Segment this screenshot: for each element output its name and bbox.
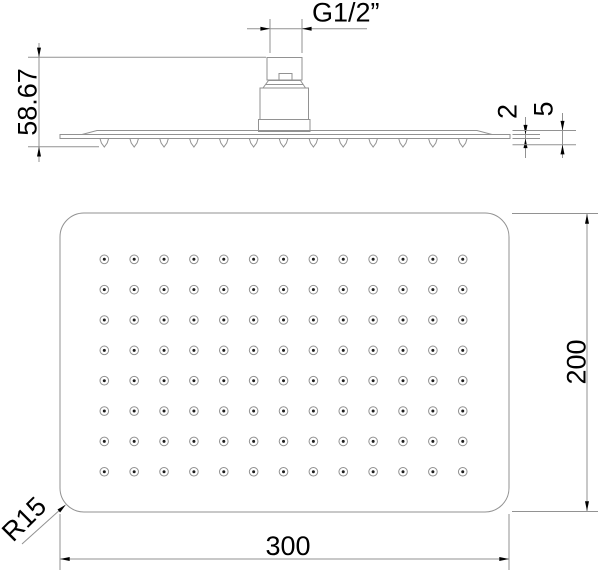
- nozzle-hole-dot: [372, 410, 375, 413]
- nozzle-tip: [100, 139, 109, 148]
- dim-thread: G1/2”: [247, 0, 380, 53]
- nozzle-hole-dot: [342, 410, 345, 413]
- nozzle-hole-dot: [282, 319, 285, 322]
- nozzle-hole-dot: [192, 349, 195, 352]
- nozzle-hole-dot: [252, 319, 255, 322]
- side-view: [60, 58, 510, 148]
- nozzle-hole-dot: [133, 258, 136, 261]
- nozzle-hole-dot: [282, 470, 285, 473]
- nozzle-hole-dot: [402, 319, 405, 322]
- nozzle-hole-dot: [192, 319, 195, 322]
- nozzle-hole-dot: [163, 258, 166, 261]
- nozzle-hole-dot: [163, 440, 166, 443]
- nozzle-hole-dot: [312, 258, 315, 261]
- nozzle-hole-dot: [103, 470, 106, 473]
- nozzle-hole-dot: [342, 470, 345, 473]
- nozzle-hole-dot: [461, 349, 464, 352]
- width-dimension-label: 300: [265, 531, 310, 561]
- nozzle-hole-dot: [372, 440, 375, 443]
- nozzle-hole-dot: [252, 258, 255, 261]
- nozzle-hole-dot: [133, 379, 136, 382]
- drawing-canvas: G1/2” 58.67 2 5 300: [0, 0, 600, 572]
- nozzle-hole-dot: [103, 258, 106, 261]
- nozzle-hole-dot: [252, 288, 255, 291]
- nozzle-hole-dot: [103, 440, 106, 443]
- arrowhead: [499, 557, 509, 561]
- nozzle-tip: [369, 139, 378, 148]
- nozzle-hole-dot: [252, 470, 255, 473]
- arrowhead: [37, 48, 41, 58]
- nozzle-hole-dot: [192, 440, 195, 443]
- nozzle-tip: [429, 139, 438, 148]
- nozzle-hole-dot: [431, 349, 434, 352]
- nozzle-hole-dot: [461, 319, 464, 322]
- nozzle-hole-dot: [402, 288, 405, 291]
- nozzle-hole-dot: [312, 288, 315, 291]
- nozzle-hole-dot: [372, 319, 375, 322]
- nozzle-hole-dot: [402, 470, 405, 473]
- nozzle-hole-dot: [192, 410, 195, 413]
- nozzle-hole-dot: [103, 319, 106, 322]
- arrowhead: [60, 557, 70, 561]
- dim-corner-radius: R15: [0, 491, 66, 547]
- nozzle-tip: [309, 139, 318, 148]
- arrowhead: [302, 27, 312, 31]
- connector-flange: [259, 120, 311, 132]
- nozzle-hole-dot: [461, 379, 464, 382]
- nozzle-hole-dot: [402, 258, 405, 261]
- nozzle-hole-dot: [372, 258, 375, 261]
- nozzle-hole-dot: [402, 349, 405, 352]
- nozzle-hole-dot: [222, 410, 225, 413]
- nozzle-hole-dot: [222, 470, 225, 473]
- nozzle-hole-dot: [372, 349, 375, 352]
- nozzle-hole-dot: [461, 470, 464, 473]
- nozzle-hole-dot: [402, 440, 405, 443]
- nozzle-hole-dot: [163, 410, 166, 413]
- thread-pipe: [267, 58, 302, 81]
- arrowhead: [260, 27, 270, 31]
- nozzle-hole-dot: [222, 379, 225, 382]
- height-dimension-label: 200: [562, 339, 592, 384]
- connector-body: [260, 88, 309, 120]
- nozzle-hole-dot: [252, 440, 255, 443]
- nozzle-hole-dot: [163, 288, 166, 291]
- nozzle-hole-dot: [133, 410, 136, 413]
- arrowhead: [585, 501, 589, 511]
- nozzle-hole-dot: [342, 288, 345, 291]
- nozzle-tip: [190, 139, 199, 148]
- nozzle-hole-dot: [133, 319, 136, 322]
- arrowhead: [585, 214, 589, 224]
- arrowhead: [524, 125, 528, 135]
- nozzle-tip: [279, 139, 288, 148]
- dim-height: 200: [512, 214, 598, 512]
- nozzle-hole-dot: [133, 470, 136, 473]
- connector-nut: [279, 74, 292, 81]
- nozzle-tip: [458, 139, 467, 148]
- nozzle-hole-dot: [222, 288, 225, 291]
- nozzle-hole-dot: [402, 410, 405, 413]
- nozzle-hole-dot: [192, 470, 195, 473]
- nozzle-hole-dot: [342, 440, 345, 443]
- nozzle-hole-dot: [222, 258, 225, 261]
- showerhead-connector: [259, 58, 311, 132]
- nozzle-tip: [399, 139, 408, 148]
- nozzle-hole-dot: [222, 319, 225, 322]
- nozzle-hole-dot: [103, 379, 106, 382]
- side-nozzle-row: [100, 139, 467, 148]
- nozzle-hole-dot: [342, 319, 345, 322]
- nozzle-tip: [219, 139, 228, 148]
- nozzle-hole-dot: [431, 470, 434, 473]
- nozzle-hole-dot: [103, 288, 106, 291]
- nozzle-hole-dot: [163, 349, 166, 352]
- nozzle-hole-dot: [103, 410, 106, 413]
- arrowhead: [524, 139, 528, 149]
- nozzle-hole-dot: [163, 379, 166, 382]
- thread-dimension-label: G1/2”: [312, 0, 380, 28]
- nozzle-hole-dot: [342, 258, 345, 261]
- nozzle-hole-dot: [103, 349, 106, 352]
- nozzle-hole-dot: [461, 258, 464, 261]
- nozzle-hole-dot: [431, 319, 434, 322]
- nozzle-hole-dot: [461, 440, 464, 443]
- nozzle-tip: [130, 139, 139, 148]
- nozzle-grid: [100, 255, 467, 476]
- nozzle-hole-dot: [372, 379, 375, 382]
- nozzle-hole-dot: [222, 440, 225, 443]
- nozzle-hole-dot: [282, 379, 285, 382]
- nozzle-tip: [249, 139, 258, 148]
- nozzle-hole-dot: [461, 288, 464, 291]
- nozzle-hole-dot: [431, 410, 434, 413]
- nozzle-hole-dot: [461, 410, 464, 413]
- nozzle-hole-dot: [133, 440, 136, 443]
- nozzle-hole-dot: [282, 440, 285, 443]
- nozzle-hole-dot: [192, 379, 195, 382]
- nozzle-hole-dot: [312, 410, 315, 413]
- corner-radius-label: R15: [0, 491, 52, 547]
- plate-faceplate: [60, 135, 510, 139]
- nozzle-hole-dot: [312, 440, 315, 443]
- nozzle-hole-dot: [192, 258, 195, 261]
- face-view: [60, 213, 509, 512]
- nozzle-hole-dot: [252, 410, 255, 413]
- height-dimension-label: 58.67: [13, 68, 43, 136]
- nozzle-tip: [339, 139, 348, 148]
- dim-head-height: 58.67: [13, 43, 267, 162]
- arrowhead: [37, 147, 41, 157]
- nozzle-hole-dot: [312, 379, 315, 382]
- nozzle-hole-dot: [192, 288, 195, 291]
- nozzle-hole-dot: [372, 470, 375, 473]
- nozzle-hole-dot: [282, 288, 285, 291]
- nozzle-hole-dot: [252, 349, 255, 352]
- nozzle-hole-dot: [252, 379, 255, 382]
- nozzle-hole-dot: [342, 349, 345, 352]
- nozzle-hole-dot: [312, 349, 315, 352]
- nozzle-hole-dot: [163, 470, 166, 473]
- nozzle-hole-dot: [431, 440, 434, 443]
- nozzle-tip: [160, 139, 169, 148]
- nozzle-hole-dot: [431, 288, 434, 291]
- nozzle-hole-dot: [431, 258, 434, 261]
- nozzle-hole-dot: [282, 258, 285, 261]
- nozzle-hole-dot: [402, 379, 405, 382]
- nozzle-hole-dot: [342, 379, 345, 382]
- nozzle-hole-dot: [372, 288, 375, 291]
- arrowhead: [561, 145, 565, 155]
- nozzle-hole-dot: [133, 288, 136, 291]
- nozzle-hole-dot: [133, 349, 136, 352]
- nozzle-hole-dot: [282, 349, 285, 352]
- technical-drawing: G1/2” 58.67 2 5 300: [0, 0, 600, 572]
- nozzle-hole-dot: [312, 319, 315, 322]
- edge-thickness-label: 2: [493, 104, 523, 119]
- nozzle-hole-dot: [312, 470, 315, 473]
- nozzle-hole-dot: [163, 319, 166, 322]
- nozzle-hole-dot: [431, 379, 434, 382]
- overall-thickness-label: 5: [529, 101, 559, 116]
- nozzle-hole-dot: [222, 349, 225, 352]
- nozzle-hole-dot: [282, 410, 285, 413]
- dim-width: 300: [60, 514, 509, 570]
- arrowhead: [561, 121, 565, 131]
